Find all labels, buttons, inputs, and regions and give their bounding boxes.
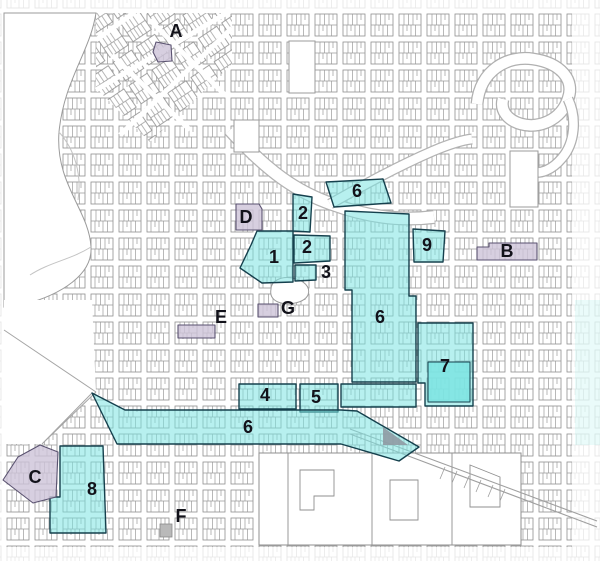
site-building-near-g [258, 304, 278, 317]
district-6-east-area [345, 211, 416, 382]
large-parcels-southeast [259, 453, 521, 545]
map-canvas: ABCDEFG122345666789 [0, 0, 600, 561]
district-6-north-area [326, 179, 391, 207]
faded-district-fragment [575, 300, 600, 445]
district-3-area [295, 265, 316, 281]
district-junction-area [341, 384, 416, 407]
empty-block [234, 120, 259, 152]
site-d-building [236, 204, 262, 230]
district-5-area [300, 384, 338, 412]
empty-block [289, 41, 315, 93]
city-map [0, 0, 600, 561]
district-4-area [239, 384, 296, 409]
empty-block [510, 151, 538, 207]
district-7-solid-block [428, 362, 470, 402]
district-9-area [413, 229, 445, 262]
gray-building-near-f [160, 524, 172, 537]
district-2-lower-area [294, 235, 330, 263]
site-building-near-e [178, 325, 215, 338]
district-2-upper-area [293, 194, 312, 232]
